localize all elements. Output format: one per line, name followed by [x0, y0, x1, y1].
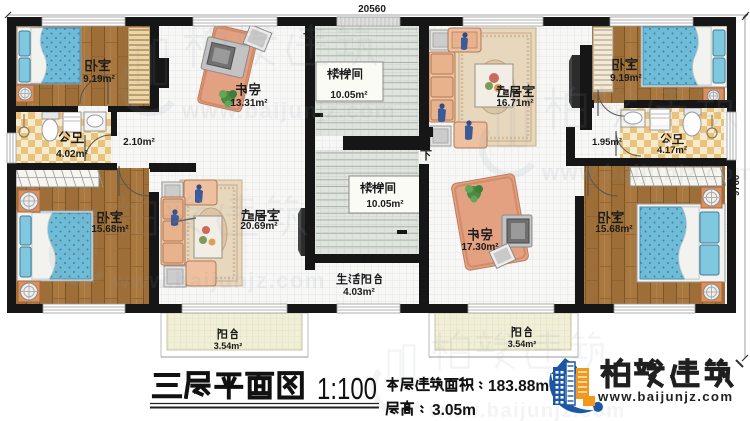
svg-text:183.88m²: 183.88m²	[488, 378, 554, 395]
svg-text:www.baijunjz.com: www.baijunjz.com	[181, 98, 396, 123]
svg-text:10.05m²: 10.05m²	[366, 199, 404, 210]
svg-text:3.54m²: 3.54m²	[508, 339, 537, 349]
svg-text:9.19m²: 9.19m²	[610, 73, 642, 84]
svg-text:15.68m²: 15.68m²	[91, 224, 129, 235]
svg-text:www.baijunjz.com: www.baijunjz.com	[111, 268, 326, 293]
svg-text:3.05m: 3.05m	[432, 402, 476, 419]
svg-text:9.19m²: 9.19m²	[83, 74, 115, 85]
svg-text:16.71m²: 16.71m²	[496, 98, 534, 109]
svg-text:1:100: 1:100	[317, 371, 377, 406]
svg-text:10.05m²: 10.05m²	[330, 90, 368, 101]
svg-text:20560: 20560	[358, 4, 386, 15]
svg-text:4.03m²: 4.03m²	[343, 287, 375, 298]
svg-text:4.17m²: 4.17m²	[657, 145, 687, 156]
svg-text:1.95m²: 1.95m²	[592, 137, 622, 148]
svg-text:2.10m²: 2.10m²	[123, 137, 155, 148]
svg-text:4.02m²: 4.02m²	[56, 149, 88, 160]
svg-text:17.30m²: 17.30m²	[461, 242, 499, 253]
svg-text:9760: 9760	[731, 175, 742, 196]
svg-text:3.54m²: 3.54m²	[214, 341, 243, 351]
svg-text:www.baijunjz.com: www.baijunjz.com	[541, 160, 750, 185]
svg-text:15.68m²: 15.68m²	[595, 224, 633, 235]
svg-text:www.baijunjz.com: www.baijunjz.com	[597, 389, 733, 404]
svg-text:13.31m²: 13.31m²	[230, 98, 268, 109]
svg-text:20.69m²: 20.69m²	[240, 221, 278, 232]
